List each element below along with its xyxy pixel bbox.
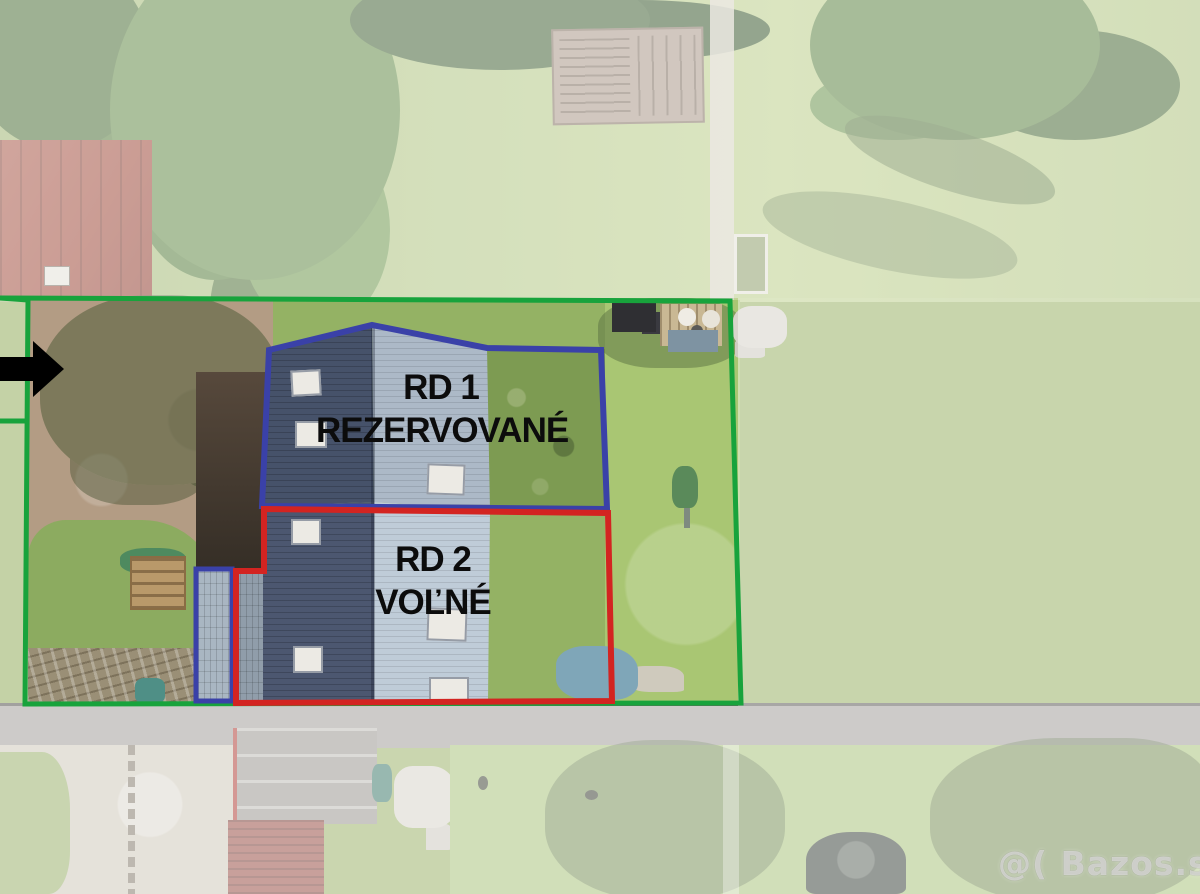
buckets — [678, 308, 696, 326]
rd1-label-line1: RD 1 — [316, 366, 566, 409]
wheelbarrow — [672, 466, 698, 508]
bazos-watermark: @( Bazos.sk — [998, 844, 1198, 883]
outside-area-fade-right — [738, 298, 1200, 706]
arrow-head — [33, 341, 64, 397]
stacked-crates — [612, 302, 656, 332]
lumber-junk-pile — [28, 648, 198, 706]
rd2-label-line2: VOĽNÉ — [308, 581, 558, 624]
skylight-window — [426, 463, 465, 495]
skylight-window — [293, 646, 323, 673]
rd1-label: RD 1 REZERVOVANÉ — [316, 366, 566, 452]
access-direction-arrow-icon — [0, 341, 66, 397]
wooden-crate — [130, 556, 186, 610]
outside-area-fade-top — [0, 0, 1200, 298]
blue-tarp-pile — [556, 646, 638, 700]
rd1-label-line2: REZERVOVANÉ — [316, 409, 566, 452]
crate-slats — [132, 558, 184, 608]
teal-debris — [135, 678, 165, 704]
house-wall-shadow — [196, 372, 266, 570]
arrow-body — [0, 357, 33, 381]
aerial-property-photo: RD 1 REZERVOVANÉ RD 2 VOĽNÉ @( Bazos.sk — [0, 0, 1200, 894]
rd2-label-line1: RD 2 — [308, 538, 558, 581]
rd2-label: RD 2 VOĽNÉ — [308, 538, 558, 624]
covered-box — [668, 330, 718, 352]
